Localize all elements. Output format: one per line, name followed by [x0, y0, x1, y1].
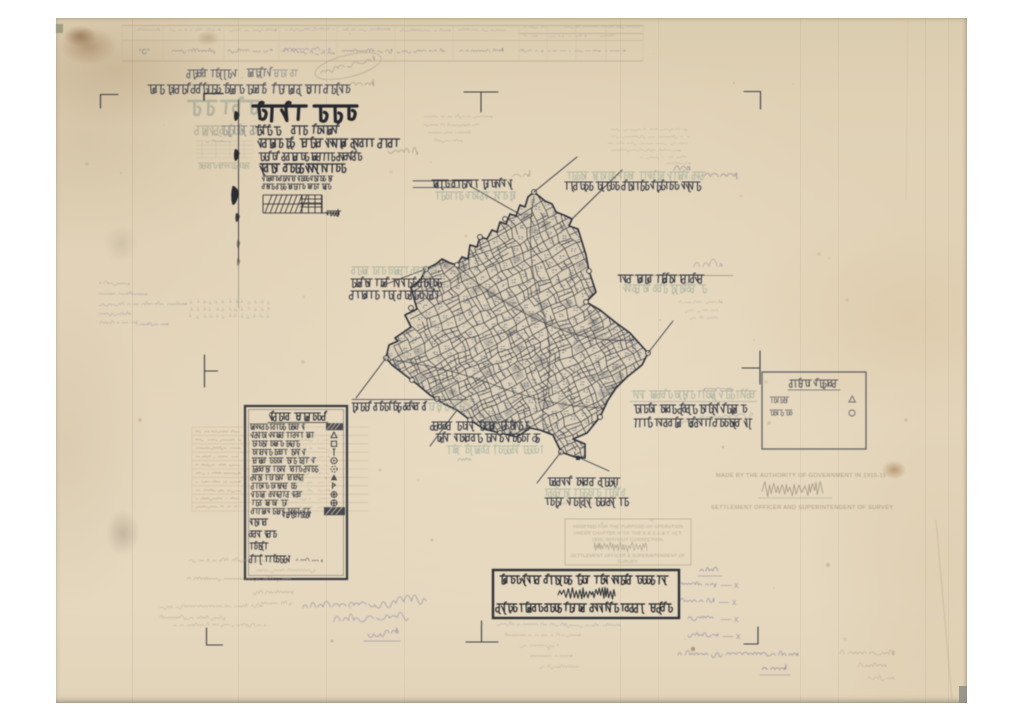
svg-text:“C”: “C”	[139, 49, 150, 56]
svg-text:UNDER CHAPTER IV OF THE E.B.S.: UNDER CHAPTER IV OF THE E.B.S.A.& T. ACT…	[574, 531, 683, 536]
svg-text:MADE BY THE AUTHORITY OF GOVER: MADE BY THE AUTHORITY OF GOVERNMENT IN 1…	[716, 473, 886, 479]
svg-text:SURVEY.: SURVEY.	[618, 559, 639, 564]
svg-text:1950, WITHOUT CORRECTION.: 1950, WITHOUT CORRECTION.	[592, 537, 665, 542]
svg-text:x: x	[732, 597, 737, 607]
svg-text:SETTLEMENT OFFICER AND SUPERIN: SETTLEMENT OFFICER AND SUPERINTENDENT OF…	[711, 505, 894, 511]
svg-text:x: x	[734, 580, 739, 590]
svg-text:ADOPTED FOR THE PURPOSE OF OPE: ADOPTED FOR THE PURPOSE OF OPERATION	[573, 524, 683, 529]
svg-text:x: x	[736, 631, 741, 641]
svg-text:x: x	[734, 614, 739, 624]
svg-text:SETTLEMENT OFFICER & SUPERINTE: SETTLEMENT OFFICER & SUPERINTENDENT OF	[571, 553, 686, 558]
